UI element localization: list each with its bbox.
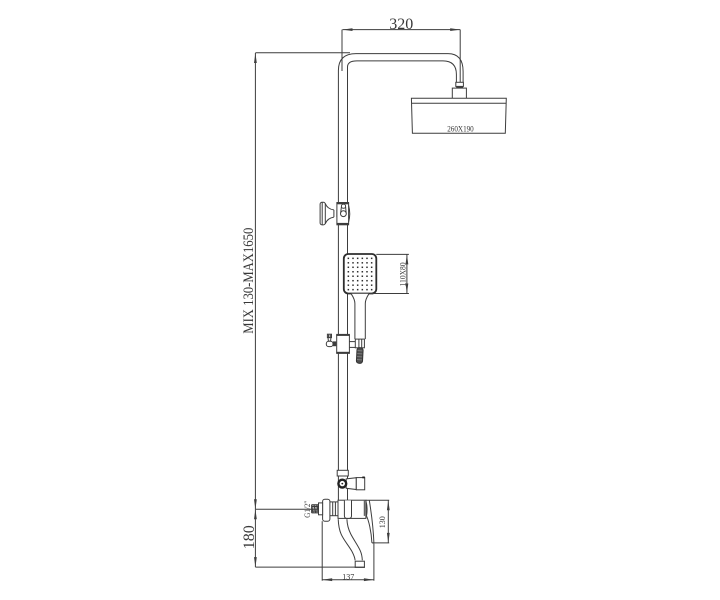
svg-text:137: 137 xyxy=(342,572,354,581)
svg-text:260X190: 260X190 xyxy=(447,125,474,134)
svg-text:180: 180 xyxy=(241,525,258,549)
svg-text:MIX 130-MAX1650: MIX 130-MAX1650 xyxy=(241,228,257,334)
svg-text:320: 320 xyxy=(389,16,413,33)
svg-text:130: 130 xyxy=(378,516,387,528)
svg-text:110X80: 110X80 xyxy=(399,262,408,286)
